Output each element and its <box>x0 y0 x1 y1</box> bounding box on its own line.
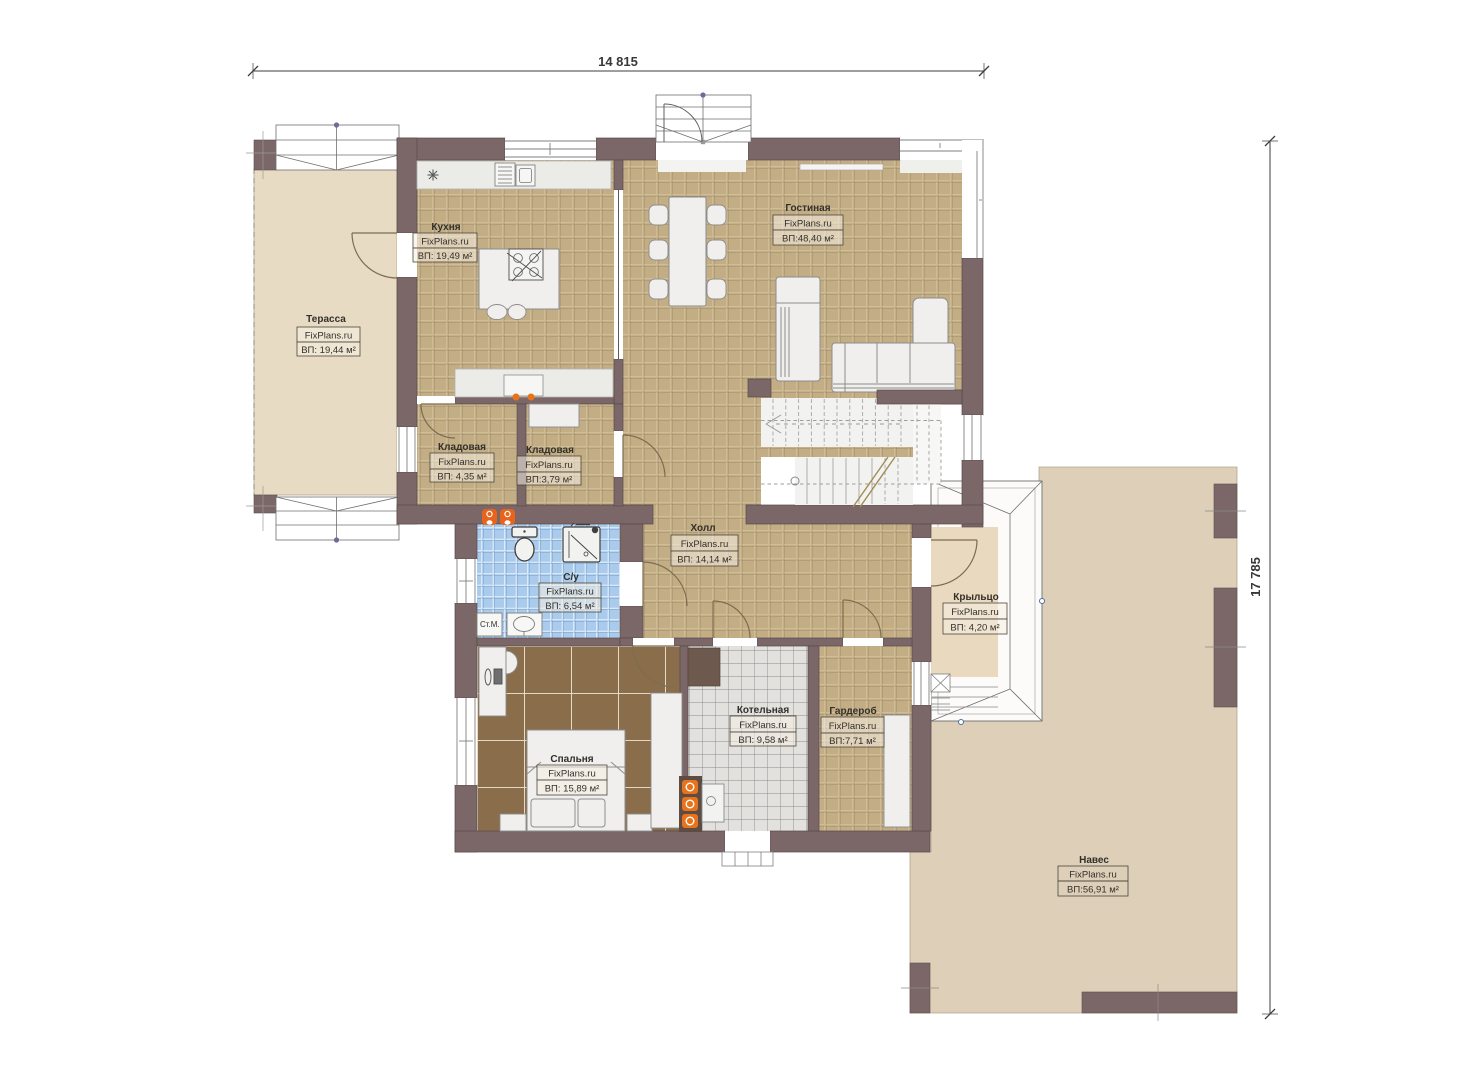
svg-text:Кладовая: Кладовая <box>438 442 486 453</box>
svg-text:FixPlans.ru: FixPlans.ru <box>421 237 469 248</box>
svg-text:FixPlans.ru: FixPlans.ru <box>739 720 787 731</box>
svg-text:FixPlans.ru: FixPlans.ru <box>681 539 729 550</box>
svg-text:ВП: 4,20 м²: ВП: 4,20 м² <box>950 623 999 634</box>
svg-text:FixPlans.ru: FixPlans.ru <box>438 457 486 468</box>
svg-text:FixPlans.ru: FixPlans.ru <box>784 219 832 230</box>
svg-text:Терасса: Терасса <box>306 314 346 325</box>
svg-text:ВП: 15,89 м²: ВП: 15,89 м² <box>545 784 600 795</box>
svg-text:ВП:3,79 м²: ВП:3,79 м² <box>526 475 573 486</box>
svg-text:ВП:7,71 м²: ВП:7,71 м² <box>829 736 876 747</box>
svg-text:ВП: 19,44 м²: ВП: 19,44 м² <box>301 345 356 356</box>
svg-text:FixPlans.ru: FixPlans.ru <box>548 769 596 780</box>
svg-text:Холл: Холл <box>690 523 715 534</box>
svg-text:ВП: 6,54 м²: ВП: 6,54 м² <box>545 601 594 612</box>
svg-text:ВП: 19,49 м²: ВП: 19,49 м² <box>418 251 473 262</box>
svg-text:FixPlans.ru: FixPlans.ru <box>546 587 594 598</box>
svg-text:ВП:48,40 м²: ВП:48,40 м² <box>782 234 834 245</box>
svg-text:Навес: Навес <box>1079 855 1109 866</box>
svg-text:ВП: 9,58 м²: ВП: 9,58 м² <box>738 735 787 746</box>
svg-text:Котельная: Котельная <box>737 705 790 716</box>
svg-text:17 785: 17 785 <box>1248 557 1263 597</box>
svg-text:Спальня: Спальня <box>550 754 593 765</box>
svg-text:Гостиная: Гостиная <box>785 203 830 214</box>
svg-text:FixPlans.ru: FixPlans.ru <box>951 607 999 618</box>
svg-text:FixPlans.ru: FixPlans.ru <box>1069 870 1117 881</box>
svg-text:Крыльцо: Крыльцо <box>953 592 999 603</box>
svg-text:Кладовая: Кладовая <box>526 445 574 456</box>
svg-text:Ст.М.: Ст.М. <box>480 620 500 629</box>
svg-text:14 815: 14 815 <box>598 54 638 69</box>
svg-text:С/у: С/у <box>563 572 579 583</box>
svg-text:FixPlans.ru: FixPlans.ru <box>525 460 573 471</box>
svg-text:ВП:56,91 м²: ВП:56,91 м² <box>1067 885 1119 896</box>
svg-text:ВП: 4,35 м²: ВП: 4,35 м² <box>437 472 486 483</box>
svg-text:Кухня: Кухня <box>431 222 460 233</box>
svg-text:Гардероб: Гардероб <box>829 705 876 717</box>
svg-text:ВП: 14,14 м²: ВП: 14,14 м² <box>677 555 732 566</box>
svg-text:FixPlans.ru: FixPlans.ru <box>829 721 877 732</box>
svg-text:FixPlans.ru: FixPlans.ru <box>305 331 353 342</box>
